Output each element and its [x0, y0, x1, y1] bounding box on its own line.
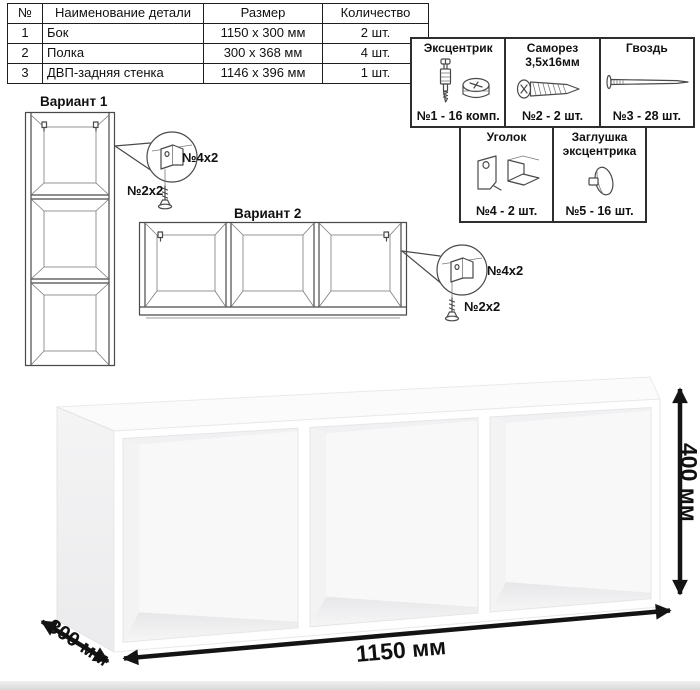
screw-icon	[446, 298, 459, 321]
part-name: Полка	[43, 44, 204, 64]
part-size: 1146 х 396 мм	[204, 64, 323, 84]
hardware-title: Заглушка эксцентрика	[556, 131, 643, 159]
variant2-screw-label: №2х2	[464, 299, 500, 314]
shelf-compartment	[310, 418, 478, 627]
hardware-qty: №1 - 16 комп.	[417, 109, 500, 123]
parts-table: № Наименование детали Размер Количество …	[7, 3, 429, 84]
header-qty: Количество	[323, 4, 429, 24]
hardware-qty: №4 - 2 шт.	[476, 204, 537, 218]
page-bottom-edge	[0, 681, 700, 690]
variant1-drawing	[24, 111, 116, 367]
screw-icon	[515, 70, 589, 109]
nail-icon	[603, 56, 691, 109]
bracket-icon	[161, 145, 183, 169]
hardware-item-cam-cap: Заглушка эксцентрика №5 - 16 шт.	[552, 128, 645, 221]
bracket-icon	[451, 258, 473, 282]
hardware-item-nail: Гвоздь №3 - 28 шт.	[599, 39, 693, 126]
eccentric-cam-bolt-icon	[417, 56, 499, 109]
variant2-title: Вариант 2	[234, 206, 301, 221]
hardware-qty: №2 - 2 шт.	[522, 109, 583, 123]
height-dimension-label: 400 мм	[675, 443, 700, 522]
hardware-qty: №3 - 28 шт.	[613, 109, 681, 123]
hardware-item-eccentric: Эксцентрик №1 - 16 комп.	[412, 39, 504, 126]
variant1-title: Вариант 1	[40, 94, 107, 109]
variant2-bracket-label: №4х2	[487, 263, 523, 278]
variant2-callout-bubble	[398, 234, 504, 330]
hardware-title: Уголок	[487, 131, 527, 145]
hardware-title: Гвоздь	[626, 42, 668, 56]
assembly-instruction-sheet: № Наименование детали Размер Количество …	[0, 0, 700, 690]
variant1-bracket-label: №4х2	[182, 150, 218, 165]
part-num: 1	[8, 24, 43, 44]
part-num: 2	[8, 44, 43, 64]
header-name: Наименование детали	[43, 4, 204, 24]
cam-cap-icon	[577, 159, 623, 204]
table-row: 1 Бок 1150 х 300 мм 2 шт.	[8, 24, 429, 44]
part-num: 3	[8, 64, 43, 84]
header-size: Размер	[204, 4, 323, 24]
table-row: 2 Полка 300 х 368 мм 4 шт.	[8, 44, 429, 64]
hardware-panel-row1: Эксцентрик №1 - 16 комп.	[410, 37, 695, 128]
hardware-qty: №5 - 16 шт.	[565, 204, 633, 218]
hardware-item-screw: Саморез 3,5х16мм №2 - 2 шт.	[504, 39, 598, 126]
shelf-3d-render	[25, 370, 700, 670]
hardware-panel-row2: Уголок №4 - 2 шт. Заглушка эксцентрика	[459, 126, 647, 223]
variant1-screw-label: №2х2	[127, 183, 163, 198]
table-row: 3 ДВП-задняя стенка 1146 х 396 мм 1 шт.	[8, 64, 429, 84]
header-num: №	[8, 4, 43, 24]
shelf-compartment	[490, 408, 651, 613]
shelf-left-side	[57, 407, 114, 652]
part-name: Бок	[43, 24, 204, 44]
shelf-compartment	[123, 428, 298, 642]
hardware-item-corner-bracket: Уголок №4 - 2 шт.	[461, 128, 552, 221]
part-size: 300 х 368 мм	[204, 44, 323, 64]
hardware-title: Саморез 3,5х16мм	[508, 42, 596, 70]
part-size: 1150 х 300 мм	[204, 24, 323, 44]
parts-table-header-row: № Наименование детали Размер Количество	[8, 4, 429, 24]
variant2-drawing	[138, 221, 408, 321]
variant1-callout-bubble	[112, 124, 216, 216]
part-name: ДВП-задняя стенка	[43, 64, 204, 84]
corner-bracket-icon	[468, 145, 546, 204]
hardware-title: Эксцентрик	[424, 42, 493, 56]
